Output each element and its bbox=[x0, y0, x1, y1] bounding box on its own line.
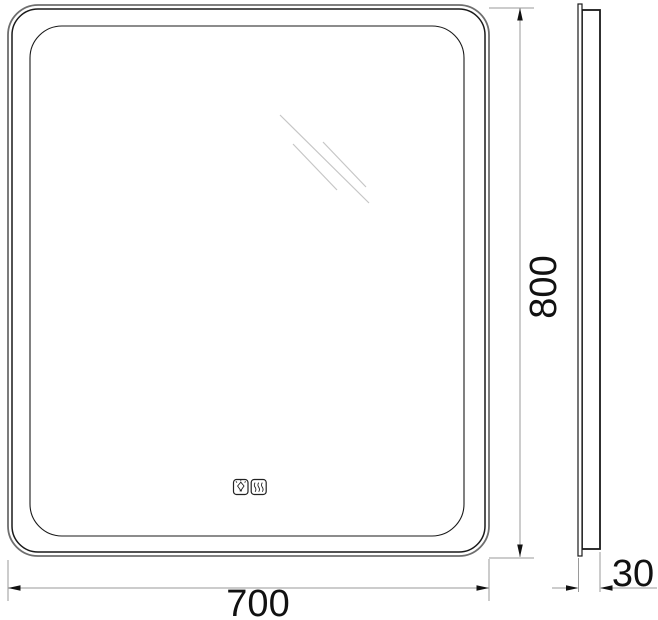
arrow-inward-left-icon bbox=[600, 585, 613, 591]
mirror-technical-drawing: 800 700 30 bbox=[0, 0, 658, 620]
height-dimension: 800 bbox=[489, 8, 565, 558]
side-view-glass bbox=[578, 4, 582, 556]
width-dimension-label: 700 bbox=[226, 583, 289, 620]
mirror-outer-edge bbox=[8, 5, 489, 556]
mirror-front-view bbox=[8, 5, 489, 556]
mirror-side-view bbox=[578, 4, 600, 556]
arrow-left-icon bbox=[8, 585, 21, 591]
arrow-up-icon bbox=[517, 8, 523, 21]
drawing-canvas: 800 700 30 bbox=[0, 0, 658, 620]
width-dimension: 700 bbox=[8, 559, 489, 620]
height-dimension-label: 800 bbox=[523, 255, 565, 318]
depth-dimension: 30 bbox=[552, 552, 657, 595]
depth-dimension-label: 30 bbox=[612, 553, 654, 595]
arrow-inward-right-icon bbox=[566, 585, 579, 591]
arrow-down-icon bbox=[517, 545, 523, 558]
side-view-body bbox=[582, 10, 600, 549]
arrow-right-icon bbox=[477, 585, 490, 591]
